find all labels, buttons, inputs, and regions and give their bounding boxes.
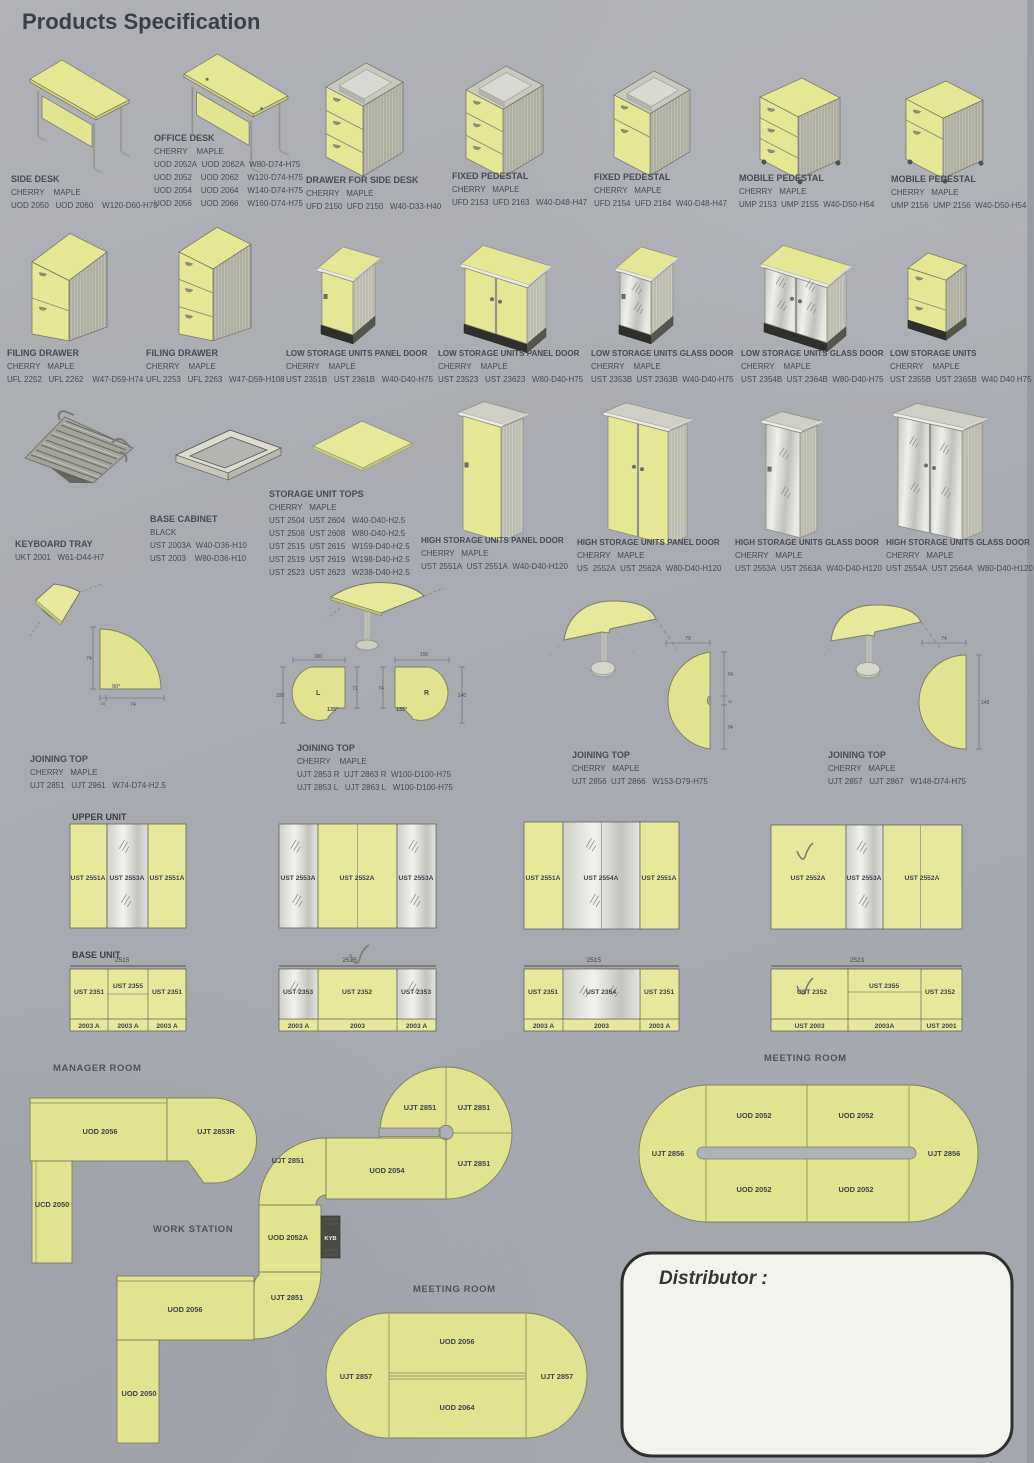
svg-text:74: 74 <box>727 672 733 678</box>
svg-text:SIDE DESK: SIDE DESK <box>11 174 60 184</box>
svg-text:2003 A: 2003 A <box>649 1023 670 1030</box>
svg-text:HIGH STORAGE UNITS PANEL DOOR: HIGH STORAGE UNITS PANEL DOOR <box>421 536 564 545</box>
svg-text:CHERRY MAPLE: CHERRY MAPLE <box>154 147 224 156</box>
svg-text:UST 2554A UST 2564A W80-D40-: UST 2554A UST 2564A W80-D40-H120 <box>886 564 1033 573</box>
svg-text:US 2552A UST 2562A W80-D40-: US 2552A UST 2562A W80-D40-H120 <box>577 564 722 573</box>
svg-text:90°: 90° <box>112 684 120 690</box>
svg-text:UOD 2052 UOD 2062 W120-D: UOD 2052 UOD 2062 W120-D74-H75 <box>154 173 304 182</box>
svg-text:UOD 2050 UOD 2060 W120-D6: UOD 2050 UOD 2060 W120-D60-H70 <box>11 201 158 210</box>
svg-text:BASE UNIT: BASE UNIT <box>72 950 121 960</box>
svg-text:CHERRY MAPLE: CHERRY MAPLE <box>828 764 895 773</box>
svg-text:UST 2003A W40-D36-H10: UST 2003A W40-D36-H10 <box>150 541 247 550</box>
svg-text:135°: 135° <box>327 707 338 713</box>
svg-text:UST 2553A: UST 2553A <box>110 875 145 882</box>
svg-text:UFD 2150 UFD 2150 W40-D33-H: UFD 2150 UFD 2150 W40-D33-H40 <box>306 202 442 211</box>
svg-text:UST 2519 UST 2619 W198-D40-: UST 2519 UST 2619 W198-D40-H2.5 <box>269 555 410 564</box>
svg-text:KYB: KYB <box>324 1236 336 1242</box>
svg-text:10: 10 <box>101 701 106 706</box>
svg-text:UST 2552A: UST 2552A <box>340 875 375 882</box>
svg-text:UST 2352: UST 2352 <box>925 989 955 996</box>
svg-text:MEETING ROOM: MEETING ROOM <box>764 1053 847 1064</box>
svg-text:UST 2504 UST 2604 W40-D40-H: UST 2504 UST 2604 W40-D40-H2.5 <box>269 516 406 525</box>
svg-text:Products Specification: Products Specification <box>22 9 260 34</box>
svg-text:UOD 2052: UOD 2052 <box>737 1185 772 1194</box>
svg-text:UST 2553A: UST 2553A <box>847 875 882 882</box>
svg-text:UOD 2056: UOD 2056 <box>440 1337 475 1346</box>
svg-text:UJT 2851: UJT 2851 <box>271 1293 303 1302</box>
svg-text:UST 2351: UST 2351 <box>74 989 104 996</box>
svg-text:UOD 2052: UOD 2052 <box>839 1185 874 1194</box>
svg-text:UOD 2056 UOD 2066 W160-D: UOD 2056 UOD 2066 W160-D74-H75 <box>154 199 304 208</box>
svg-text:UJT 2853 L UJT 2863 L W100: UJT 2853 L UJT 2863 L W100-D100-H75 <box>297 783 453 792</box>
svg-text:2003 A: 2003 A <box>533 1023 554 1030</box>
svg-text:FIXED PEDESTAL: FIXED PEDESTAL <box>452 171 529 181</box>
svg-text:79: 79 <box>685 636 691 642</box>
svg-text:CHERRY MAPLE: CHERRY MAPLE <box>11 188 81 197</box>
svg-text:UOD 2056: UOD 2056 <box>168 1305 203 1314</box>
svg-text:UFD 2153 UFD 2163 W40-D48-H: UFD 2153 UFD 2163 W40-D48-H47 <box>452 198 588 207</box>
svg-text:UOD 2054: UOD 2054 <box>370 1166 406 1175</box>
svg-text:UOD 2052: UOD 2052 <box>737 1111 772 1120</box>
svg-text:CHERRY MAPLE: CHERRY MAPLE <box>591 362 661 371</box>
svg-text:MANAGER ROOM: MANAGER ROOM <box>53 1063 141 1074</box>
svg-text:2003 A: 2003 A <box>78 1023 99 1030</box>
svg-text:UCD 2050: UCD 2050 <box>35 1200 70 1209</box>
svg-text:135°: 135° <box>396 707 407 713</box>
svg-text:UKT 2001 W61-D44-H7: UKT 2001 W61-D44-H7 <box>15 553 105 562</box>
svg-text:CHERRY MAPLE: CHERRY MAPLE <box>146 362 216 371</box>
svg-text:UST 2353B UST 2363B W40-D40-: UST 2353B UST 2363B W40-D40-H75 <box>591 375 734 384</box>
svg-text:JOINING TOP: JOINING TOP <box>297 743 355 753</box>
svg-text:148: 148 <box>981 700 990 706</box>
svg-text:CHERRY MAPLE: CHERRY MAPLE <box>297 757 367 766</box>
svg-text:CHERRY MAPLE: CHERRY MAPLE <box>269 503 336 512</box>
svg-text:UMP 2156 UMP 2156 W40-D50-H5: UMP 2156 UMP 2156 W40-D50-H54 <box>891 201 1027 210</box>
svg-text:HIGH STORAGE UNITS PANEL DOOR: HIGH STORAGE UNITS PANEL DOOR <box>577 538 720 547</box>
svg-text:R: R <box>424 690 429 697</box>
svg-text:UOD 2064: UOD 2064 <box>440 1403 476 1412</box>
svg-text:CHERRY MAPLE: CHERRY MAPLE <box>741 362 811 371</box>
svg-text:74: 74 <box>941 636 947 642</box>
svg-text:UOD 2050: UOD 2050 <box>122 1389 157 1398</box>
svg-text:140: 140 <box>458 693 467 699</box>
svg-text:CHERRY MAPLE: CHERRY MAPLE <box>452 185 519 194</box>
svg-text:UST 2355B UST 2365B W40 D40: UST 2355B UST 2365B W40 D40 H75 <box>890 375 1032 384</box>
svg-text:UJT 2851: UJT 2851 <box>404 1103 436 1112</box>
svg-text:OFFICE DESK: OFFICE DESK <box>154 133 215 143</box>
svg-text:WORK STATION: WORK STATION <box>153 1224 233 1235</box>
svg-text:BLACK: BLACK <box>150 528 177 537</box>
svg-text:UST 2515 UST 2615 W159-D40-: UST 2515 UST 2615 W159-D40-H2.5 <box>269 542 410 551</box>
svg-text:UST 2351B UST 2361B W40-D4: UST 2351B UST 2361B W40-D40-H75 <box>286 375 433 384</box>
svg-text:CHERRY MAPLE: CHERRY MAPLE <box>7 362 74 371</box>
svg-text:FIXED PEDESTAL: FIXED PEDESTAL <box>594 172 671 182</box>
svg-text:2003: 2003 <box>594 1023 609 1030</box>
svg-text:UPPER UNIT: UPPER UNIT <box>72 812 127 822</box>
svg-text:CHERRY MAPLE: CHERRY MAPLE <box>577 551 644 560</box>
svg-text:UST 2351: UST 2351 <box>528 989 558 996</box>
svg-text:UOD 2056: UOD 2056 <box>83 1127 118 1136</box>
svg-text:UOD 2052: UOD 2052 <box>839 1111 874 1120</box>
svg-text:UFD 2154 UFD 2164 W40-D48-H4: UFD 2154 UFD 2164 W40-D48-H47 <box>594 199 727 208</box>
svg-text:FILING DRAWER: FILING DRAWER <box>146 348 218 358</box>
svg-text:UST 2508 UST 2608 W80-D40-H: UST 2508 UST 2608 W80-D40-H2.5 <box>269 529 406 538</box>
svg-text:74: 74 <box>86 656 92 662</box>
svg-text:UST 2551A UST 2551A W40-D40-: UST 2551A UST 2551A W40-D40-H120 <box>421 562 568 571</box>
svg-text:UST 2553A: UST 2553A <box>281 875 316 882</box>
svg-text:CHERRY MAPLE: CHERRY MAPLE <box>421 549 488 558</box>
svg-text:CHERRY MAPLE: CHERRY MAPLE <box>890 362 960 371</box>
svg-text:LOW STORAGE UNITS PANEL DOOR: LOW STORAGE UNITS PANEL DOOR <box>438 349 580 358</box>
svg-text:LOW STORAGE UNITS GLASS DOOR: LOW STORAGE UNITS GLASS DOOR <box>591 349 734 358</box>
svg-text:CHERRY MAPLE: CHERRY MAPLE <box>891 188 958 197</box>
svg-text:CHERRY MAPLE: CHERRY MAPLE <box>286 362 356 371</box>
svg-text:UOD 2052A UOD 2062A W80-D74-: UOD 2052A UOD 2062A W80-D74-H75 <box>154 160 301 169</box>
svg-text:JOINING TOP: JOINING TOP <box>828 750 886 760</box>
svg-text:UST 2001: UST 2001 <box>926 1023 956 1030</box>
svg-text:10: 10 <box>728 699 733 704</box>
svg-text:Distributor :: Distributor : <box>659 1268 768 1289</box>
svg-text:UOD 2052A: UOD 2052A <box>268 1233 309 1242</box>
svg-text:UST 2551A: UST 2551A <box>526 875 561 882</box>
svg-text:UST 2353: UST 2353 <box>283 989 313 996</box>
svg-text:LOW STORAGE UNITS: LOW STORAGE UNITS <box>890 349 977 358</box>
svg-text:UST 2003 W80-D36-H10: UST 2003 W80-D36-H10 <box>150 554 246 563</box>
svg-text:MOBILE PEDESTAL: MOBILE PEDESTAL <box>739 173 824 183</box>
svg-text:LOW STORAGE UNITS GLASS DOOR: LOW STORAGE UNITS GLASS DOOR <box>741 349 884 358</box>
svg-text:2003 A: 2003 A <box>156 1023 177 1030</box>
svg-text:71: 71 <box>352 686 358 692</box>
svg-text:UJT 2857: UJT 2857 <box>340 1372 372 1381</box>
svg-text:UJT 2857 UJT 2867 W148-D74: UJT 2857 UJT 2867 W148-D74-H75 <box>828 777 967 786</box>
svg-text:74: 74 <box>378 686 384 692</box>
svg-text:UST 2523 UST 2623 W238-D40-: UST 2523 UST 2623 W238-D40-H2.5 <box>269 568 410 577</box>
svg-text:CHERRY MAPLE: CHERRY MAPLE <box>438 362 508 371</box>
svg-text:DRAWER FOR SIDE DESK: DRAWER FOR SIDE DESK <box>306 175 419 185</box>
svg-text:2003 A: 2003 A <box>406 1023 427 1030</box>
svg-text:UST 2353: UST 2353 <box>401 989 431 996</box>
svg-text:HIGH STORAGE UNITS GLASS DOOR: HIGH STORAGE UNITS GLASS DOOR <box>735 538 879 547</box>
svg-text:CHERRY MAPLE: CHERRY MAPLE <box>739 187 806 196</box>
svg-text:UST 2003: UST 2003 <box>794 1023 824 1030</box>
svg-text:UST 2355: UST 2355 <box>869 983 899 990</box>
svg-text:UST 2553A: UST 2553A <box>399 875 434 882</box>
svg-text:UFL 2252 UFL 2262 W47-D59: UFL 2252 UFL 2262 W47-D59-H74 <box>7 375 144 384</box>
svg-text:CHERRY MAPLE: CHERRY MAPLE <box>594 186 661 195</box>
svg-text:2003 A: 2003 A <box>117 1023 138 1030</box>
svg-text:UJT 2856: UJT 2856 <box>652 1149 684 1158</box>
svg-text:UJT 2857: UJT 2857 <box>541 1372 573 1381</box>
svg-text:100: 100 <box>314 654 323 660</box>
svg-text:UJT 2856 UJT 2866 W153-D79-: UJT 2856 UJT 2866 W153-D79-H75 <box>572 777 708 786</box>
svg-text:UST 2354B UST 2364B W80-D40-: UST 2354B UST 2364B W80-D40-H75 <box>741 375 884 384</box>
svg-text:UST 2554A: UST 2554A <box>584 875 619 882</box>
svg-text:UJT 2851: UJT 2851 <box>458 1103 490 1112</box>
svg-text:JOINING TOP: JOINING TOP <box>30 754 88 764</box>
svg-text:74: 74 <box>727 725 733 731</box>
svg-text:UJT 2851: UJT 2851 <box>458 1159 490 1168</box>
svg-text:2003A: 2003A <box>875 1023 895 1030</box>
svg-text:STORAGE UNIT TOPS: STORAGE UNIT TOPS <box>269 489 364 499</box>
svg-text:UST 2551A: UST 2551A <box>150 875 185 882</box>
svg-text:2003: 2003 <box>350 1023 365 1030</box>
svg-text:UST 2355: UST 2355 <box>113 983 143 990</box>
svg-text:UST 2553A UST 2563A W40-D40-: UST 2553A UST 2563A W40-D40-H120 <box>735 564 882 573</box>
svg-text:KEYBOARD TRAY: KEYBOARD TRAY <box>15 539 93 549</box>
svg-text:100: 100 <box>276 693 285 699</box>
svg-text:UJT 2851: UJT 2851 <box>272 1156 304 1165</box>
svg-text:MEETING ROOM: MEETING ROOM <box>413 1284 496 1295</box>
svg-text:LOW STORAGE UNITS PANEL DOOR: LOW STORAGE UNITS PANEL DOOR <box>286 349 428 358</box>
svg-text:CHERRY MAPLE: CHERRY MAPLE <box>735 551 802 560</box>
svg-text:2003 A: 2003 A <box>288 1023 309 1030</box>
svg-text:JOINING TOP: JOINING TOP <box>572 750 630 760</box>
svg-text:UJT 2856: UJT 2856 <box>928 1149 960 1158</box>
svg-text:UST 2552A: UST 2552A <box>791 875 826 882</box>
svg-text:UJT 2851 UJT 2961 W74-D74-: UJT 2851 UJT 2961 W74-D74-H2.5 <box>30 781 166 790</box>
svg-text:CHERRY MAPLE: CHERRY MAPLE <box>30 768 97 777</box>
svg-text:UOD 2054 UOD 2064 W140-D: UOD 2054 UOD 2064 W140-D74-H75 <box>154 186 304 195</box>
svg-text:UJT 2853R: UJT 2853R <box>197 1127 235 1136</box>
svg-text:CHERRY MAPLE: CHERRY MAPLE <box>886 551 953 560</box>
svg-text:UST 2352: UST 2352 <box>797 989 827 996</box>
svg-text:2515: 2515 <box>115 957 130 964</box>
svg-text:UFL 2253 UFL 2263 W47-D59-: UFL 2253 UFL 2263 W47-D59-H108 <box>146 375 285 384</box>
svg-text:2523: 2523 <box>850 957 865 964</box>
svg-text:UMP 2153 UMP 2155 W40-D50-H5: UMP 2153 UMP 2155 W40-D50-H54 <box>739 200 875 209</box>
svg-text:FILING DRAWER: FILING DRAWER <box>7 348 79 358</box>
svg-text:74: 74 <box>130 702 136 708</box>
svg-text:UST 23523 UST 23623 W80-D4: UST 23523 UST 23623 W80-D40-H75 <box>438 375 584 384</box>
svg-text:BASE CABINET: BASE CABINET <box>150 514 218 524</box>
svg-text:UST 2551A: UST 2551A <box>642 875 677 882</box>
svg-text:CHERRY MAPLE: CHERRY MAPLE <box>572 764 639 773</box>
svg-text:HIGH STORAGE UNITS GLASS DOOR: HIGH STORAGE UNITS GLASS DOOR <box>886 538 1030 547</box>
svg-text:UST 2351: UST 2351 <box>152 989 182 996</box>
svg-text:UST 2352: UST 2352 <box>342 989 372 996</box>
svg-text:UST 2551A: UST 2551A <box>71 875 106 882</box>
svg-text:UST 2351: UST 2351 <box>644 989 674 996</box>
svg-text:UST 2552A: UST 2552A <box>905 875 940 882</box>
svg-text:CHERRY MAPLE: CHERRY MAPLE <box>306 189 373 198</box>
svg-text:L: L <box>316 690 321 697</box>
svg-text:100: 100 <box>420 652 429 658</box>
svg-text:MOBILE PEDESTAL: MOBILE PEDESTAL <box>891 174 976 184</box>
svg-text:2515: 2515 <box>587 957 602 964</box>
svg-text:UST 2354: UST 2354 <box>586 989 616 996</box>
svg-text:UJT 2853 R UJT 2863 R W100-D: UJT 2853 R UJT 2863 R W100-D100-H75 <box>297 770 452 779</box>
